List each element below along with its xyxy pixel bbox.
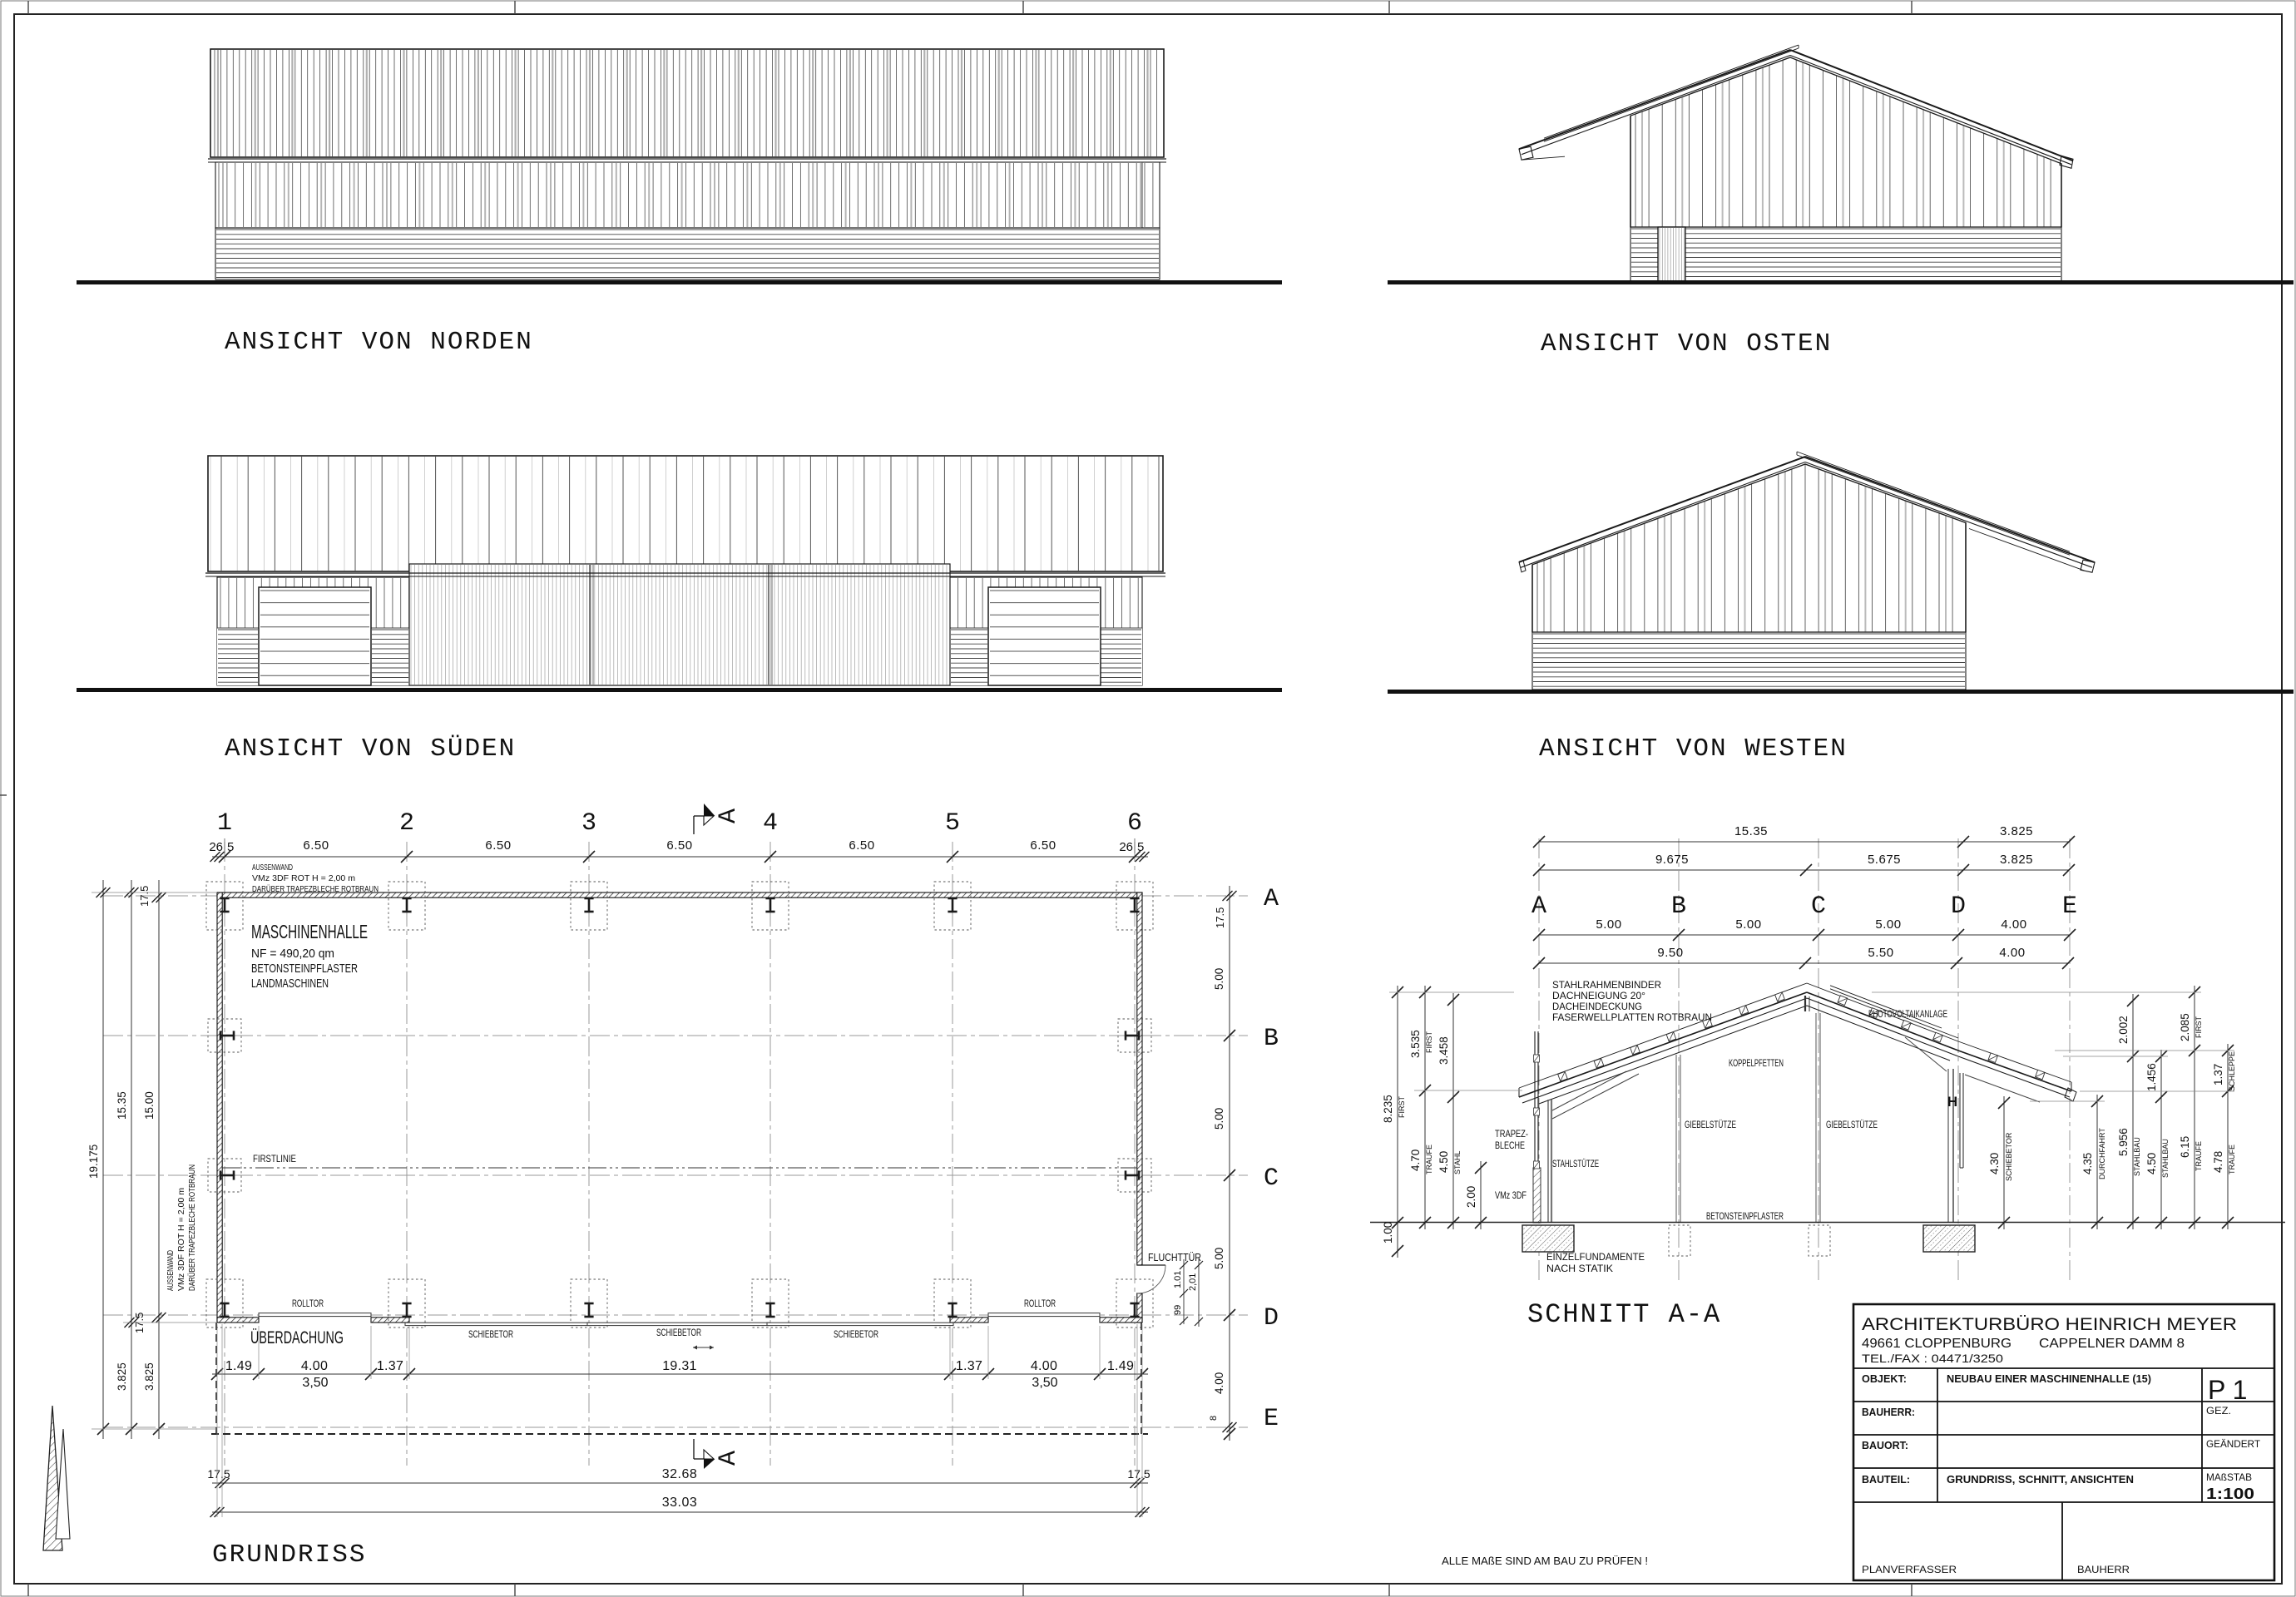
svg-text:32.68: 32.68: [662, 1467, 698, 1481]
svg-text:4.00: 4.00: [1031, 1359, 1057, 1373]
svg-text:GEZ.: GEZ.: [2206, 1405, 2231, 1417]
svg-text:19.175: 19.175: [87, 1145, 100, 1179]
svg-text:2,01: 2,01: [1188, 1273, 1198, 1291]
svg-text:GIEBELSTÜTZE: GIEBELSTÜTZE: [1685, 1119, 1736, 1130]
svg-text:ROLLTOR: ROLLTOR: [292, 1298, 324, 1309]
svg-text:STAHLBAU: STAHLBAU: [2161, 1139, 2170, 1178]
svg-text:6: 6: [1127, 809, 1142, 838]
svg-text:VMz 3DF ROT H = 2,00 m: VMz 3DF ROT H = 2,00 m: [176, 1188, 186, 1291]
svg-text:5: 5: [1137, 840, 1144, 854]
svg-text:P 1: P 1: [2208, 1375, 2247, 1405]
svg-text:STAHLRAHMENBINDER: STAHLRAHMENBINDER: [1552, 979, 1661, 991]
svg-text:2.085: 2.085: [2179, 1013, 2191, 1041]
svg-text:8.235: 8.235: [1382, 1095, 1394, 1123]
svg-text:3.825: 3.825: [143, 1362, 156, 1391]
svg-text:19.31: 19.31: [662, 1359, 697, 1373]
svg-text:5.00: 5.00: [1735, 917, 1761, 932]
svg-text:TRAUFE: TRAUFE: [1425, 1145, 1433, 1174]
svg-text:5.00: 5.00: [1875, 917, 1901, 932]
svg-text:3.535: 3.535: [1409, 1030, 1422, 1058]
svg-text:FIRST: FIRST: [1425, 1031, 1433, 1053]
svg-text:EINZELFUNDAMENTE: EINZELFUNDAMENTE: [1546, 1251, 1645, 1263]
svg-text:6.50: 6.50: [666, 838, 692, 853]
svg-text:H: H: [1947, 1094, 1957, 1110]
svg-text:5.00: 5.00: [1596, 917, 1621, 932]
svg-text:ROLLTOR: ROLLTOR: [1024, 1298, 1056, 1309]
svg-text:4.00: 4.00: [1213, 1372, 1225, 1394]
svg-text:6.50: 6.50: [1030, 838, 1056, 853]
svg-text:B: B: [1671, 892, 1686, 921]
svg-text:5.956: 5.956: [2117, 1128, 2130, 1156]
svg-text:15.00: 15.00: [143, 1091, 156, 1120]
svg-text:2.00: 2.00: [1465, 1186, 1477, 1208]
svg-text:5.00: 5.00: [1213, 968, 1225, 990]
svg-text:FLUCHTTÜR: FLUCHTTÜR: [1148, 1252, 1201, 1263]
svg-text:1.49: 1.49: [225, 1359, 252, 1373]
svg-text:6.15: 6.15: [2179, 1136, 2191, 1158]
svg-text:OBJEKT:: OBJEKT:: [1862, 1372, 1907, 1385]
svg-text:4.00: 4.00: [301, 1359, 328, 1373]
svg-text:1.49: 1.49: [1107, 1359, 1134, 1373]
svg-text:1.00: 1.00: [1382, 1222, 1394, 1243]
svg-text:6.50: 6.50: [303, 838, 329, 853]
svg-text:4.70: 4.70: [1409, 1150, 1422, 1171]
svg-text:GRUNDRISS, SCHNITT, ANSICHTEN: GRUNDRISS, SCHNITT, ANSICHTEN: [1947, 1473, 2134, 1486]
svg-text:MASCHINENHALLE: MASCHINENHALLE: [251, 921, 368, 942]
svg-text:ÜBERDACHUNG: ÜBERDACHUNG: [250, 1328, 344, 1347]
svg-text:TEL./FAX : 04471/3250: TEL./FAX : 04471/3250: [1862, 1352, 2003, 1365]
svg-text:VMz 3DF ROT H = 2,00 m: VMz 3DF ROT H = 2,00 m: [252, 873, 355, 883]
svg-text:5.00: 5.00: [1213, 1108, 1225, 1130]
svg-text:1:100: 1:100: [2206, 1486, 2254, 1502]
svg-text:B: B: [1264, 1025, 1279, 1053]
svg-text:C: C: [1811, 892, 1826, 921]
svg-text:DACHEINDECKUNG: DACHEINDECKUNG: [1552, 1001, 1642, 1012]
svg-text:3,50: 3,50: [302, 1376, 328, 1390]
svg-text:C: C: [1264, 1164, 1279, 1193]
svg-text:17.5: 17.5: [1214, 907, 1226, 928]
svg-text:AUSSENWAND: AUSSENWAND: [252, 863, 293, 873]
svg-text:BAUHERR: BAUHERR: [2077, 1564, 2130, 1575]
svg-text:1.37: 1.37: [956, 1359, 982, 1373]
svg-text:GIEBELSTÜTZE: GIEBELSTÜTZE: [1826, 1119, 1878, 1130]
svg-text:15.35: 15.35: [116, 1091, 128, 1120]
svg-text:26: 26: [209, 840, 223, 854]
svg-text:DURCHFAHRT: DURCHFAHRT: [2098, 1128, 2106, 1179]
svg-text:4.50: 4.50: [1437, 1151, 1450, 1173]
svg-text:9.50: 9.50: [1657, 946, 1683, 960]
svg-text:26: 26: [1119, 840, 1133, 854]
svg-text:TRAPEZ-: TRAPEZ-: [1495, 1128, 1528, 1140]
svg-text:3,50: 3,50: [1032, 1376, 1057, 1390]
svg-text:STAHL: STAHL: [1453, 1151, 1462, 1174]
svg-text:4.30: 4.30: [1988, 1153, 2001, 1174]
svg-text:9.675: 9.675: [1655, 853, 1689, 867]
svg-text:BLECHE: BLECHE: [1495, 1140, 1525, 1151]
svg-text:SCHNITT A-A: SCHNITT A-A: [1527, 1299, 1721, 1330]
svg-text:A: A: [715, 808, 743, 823]
svg-text:4: 4: [763, 809, 778, 838]
svg-text:4.00: 4.00: [2001, 917, 2026, 932]
svg-text:8: 8: [1209, 1416, 1219, 1421]
svg-text:ANSICHT VON OSTEN: ANSICHT VON OSTEN: [1541, 329, 1832, 358]
svg-text:E: E: [2062, 892, 2077, 921]
svg-text:FIRSTLINIE: FIRSTLINIE: [253, 1153, 296, 1164]
svg-text:NACH STATIK: NACH STATIK: [1546, 1263, 1613, 1274]
svg-text:15.35: 15.35: [1734, 824, 1768, 838]
svg-text:17.5: 17.5: [207, 1467, 230, 1481]
svg-text:1: 1: [217, 809, 232, 838]
svg-text:A: A: [1531, 892, 1546, 921]
svg-text:ANSICHT VON WESTEN: ANSICHT VON WESTEN: [1539, 734, 1848, 764]
svg-text:BAUORT:: BAUORT:: [1862, 1439, 1908, 1451]
svg-text:6.50: 6.50: [849, 838, 874, 853]
svg-text:ANSICHT VON NORDEN: ANSICHT VON NORDEN: [225, 328, 533, 357]
svg-text:5.50: 5.50: [1868, 946, 1893, 960]
svg-text:A: A: [715, 1451, 743, 1466]
svg-text:BAUTEIL:: BAUTEIL:: [1862, 1473, 1910, 1486]
svg-text:5: 5: [945, 809, 960, 838]
svg-text:SCHIEBETOR: SCHIEBETOR: [2005, 1132, 2013, 1181]
svg-text:PLANVERFASSER: PLANVERFASSER: [1862, 1564, 1957, 1575]
svg-text:ANSICHT VON SÜDEN: ANSICHT VON SÜDEN: [225, 734, 516, 764]
svg-text:STAHLBAU: STAHLBAU: [2133, 1137, 2141, 1176]
svg-text:49661 CLOPPENBURG: 49661 CLOPPENBURG: [1862, 1337, 2011, 1351]
svg-text:MAßSTAB: MAßSTAB: [2206, 1471, 2252, 1483]
svg-text:BETONSTEINPFLASTER: BETONSTEINPFLASTER: [1706, 1210, 1784, 1222]
svg-text:FASERWELLPLATTEN ROTBRAUN: FASERWELLPLATTEN ROTBRAUN: [1552, 1011, 1712, 1023]
svg-text:2.002: 2.002: [2117, 1016, 2130, 1044]
svg-text:2: 2: [399, 809, 414, 838]
svg-text:4.50: 4.50: [2145, 1153, 2158, 1174]
svg-text:3.458: 3.458: [1437, 1036, 1450, 1065]
svg-text:KOPPELPFETTEN: KOPPELPFETTEN: [1729, 1057, 1784, 1069]
svg-text:6.50: 6.50: [485, 838, 511, 853]
svg-text:D: D: [1951, 892, 1966, 921]
svg-text:GRUNDRISS: GRUNDRISS: [212, 1540, 366, 1570]
svg-text:CAPPELNER DAMM 8: CAPPELNER DAMM 8: [2039, 1337, 2185, 1351]
svg-text:LANDMASCHINEN: LANDMASCHINEN: [251, 976, 329, 991]
svg-text:5: 5: [227, 840, 234, 854]
svg-text:E: E: [1264, 1405, 1279, 1433]
svg-text:33.03: 33.03: [662, 1496, 698, 1510]
svg-text:VMz 3DF: VMz 3DF: [1495, 1189, 1527, 1201]
svg-text:DACHNEIGUNG 20°: DACHNEIGUNG 20°: [1552, 990, 1645, 1001]
svg-text:BAUHERR:: BAUHERR:: [1862, 1406, 1915, 1418]
svg-text:DARÜBER TRAPEZBLECHE ROTBRAUN: DARÜBER TRAPEZBLECHE ROTBRAUN: [252, 884, 379, 894]
svg-text:1.01: 1.01: [1173, 1271, 1183, 1288]
svg-text:NF = 490,20 qm: NF = 490,20 qm: [251, 947, 334, 961]
svg-text:FIRST: FIRST: [2195, 1016, 2203, 1038]
svg-text:SCHIEBETOR: SCHIEBETOR: [834, 1328, 878, 1340]
svg-text:3.825: 3.825: [2000, 824, 2033, 838]
svg-text:TRAUFE: TRAUFE: [2228, 1145, 2236, 1174]
svg-text:BETONSTEINPFLASTER: BETONSTEINPFLASTER: [251, 962, 358, 976]
svg-text:1.37: 1.37: [2212, 1064, 2224, 1085]
svg-text:99: 99: [1173, 1305, 1183, 1315]
svg-text:1.456: 1.456: [2145, 1063, 2158, 1091]
svg-text:STAHLSTÜTZE: STAHLSTÜTZE: [1552, 1158, 1599, 1169]
svg-text:TRAUFE: TRAUFE: [2195, 1141, 2203, 1171]
svg-text:17.5: 17.5: [138, 886, 151, 907]
svg-text:AUSSENWAND: AUSSENWAND: [166, 1250, 176, 1291]
svg-text:SCHIEBETOR: SCHIEBETOR: [656, 1327, 701, 1338]
svg-text:4.35: 4.35: [2081, 1153, 2094, 1174]
svg-text:5.675: 5.675: [1868, 853, 1901, 867]
svg-text:ARCHITEKTURBÜRO HEINRICH MEYER: ARCHITEKTURBÜRO HEINRICH MEYER: [1862, 1315, 2237, 1334]
svg-text:4.00: 4.00: [1999, 946, 2025, 960]
svg-text:1.37: 1.37: [377, 1359, 403, 1373]
svg-text:3: 3: [581, 809, 596, 838]
svg-text:SCHLEPPE: SCHLEPPE: [2228, 1051, 2236, 1091]
svg-text:FIRST: FIRST: [1398, 1095, 1406, 1118]
svg-text:DARÜBER TRAPEZBLECHE ROTBRAUN: DARÜBER TRAPEZBLECHE ROTBRAUN: [187, 1164, 197, 1291]
svg-text:A: A: [1264, 885, 1279, 913]
svg-text:GEÄNDERT: GEÄNDERT: [2206, 1438, 2261, 1450]
svg-text:PHOTOVOLTAIKANLAGE: PHOTOVOLTAIKANLAGE: [1868, 1008, 1947, 1020]
svg-text:D: D: [1264, 1304, 1279, 1332]
svg-text:5.00: 5.00: [1213, 1248, 1225, 1269]
svg-text:NEUBAU EINER MASCHINENHALLE (1: NEUBAU EINER MASCHINENHALLE (15): [1947, 1372, 2151, 1385]
svg-text:ALLE MAßE SIND AM BAU ZU PRÜFE: ALLE MAßE SIND AM BAU ZU PRÜFEN !: [1442, 1555, 1648, 1567]
svg-text:3.825: 3.825: [2000, 853, 2033, 867]
svg-text:3.825: 3.825: [116, 1362, 128, 1391]
svg-text:4.78: 4.78: [2212, 1151, 2224, 1173]
svg-text:SCHIEBETOR: SCHIEBETOR: [468, 1328, 513, 1340]
